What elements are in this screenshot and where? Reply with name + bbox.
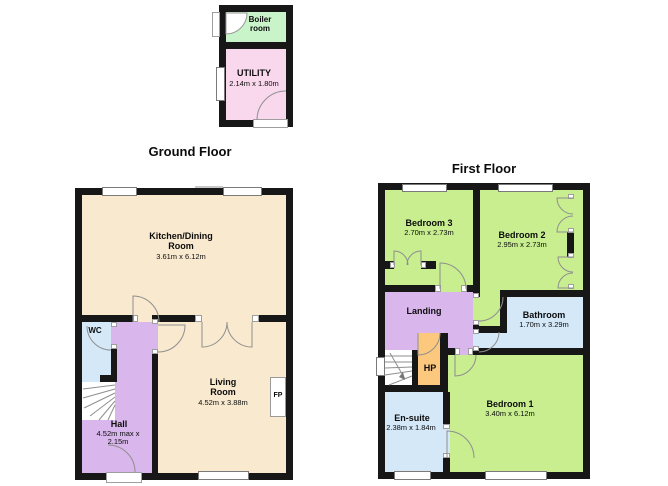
front-door-leaf (106, 472, 142, 483)
door-jamb (568, 228, 574, 233)
door-jamb (421, 262, 426, 268)
door-jamb (435, 285, 441, 292)
ensuite-dims: 2.38m x 1.84m (386, 424, 436, 432)
ground-floor-title: Ground Floor (148, 144, 231, 159)
landing-window (376, 357, 385, 376)
bedroom3-dims: 2.70m x 2.73m (404, 229, 454, 237)
back-step-line (195, 186, 223, 188)
first-floor-title: First Floor (452, 161, 516, 176)
door-jamb (473, 293, 479, 298)
door-jamb (468, 348, 473, 355)
bedroom2-dims: 2.95m x 2.73m (497, 241, 547, 249)
bathroom-dims: 1.70m x 3.29m (519, 321, 569, 329)
door-jamb (568, 284, 574, 289)
boiler-door-leaf (212, 12, 220, 37)
door-jamb (195, 315, 202, 322)
door-jamb (568, 253, 574, 258)
door-jamb (133, 315, 138, 322)
bedroom1-window (485, 471, 547, 480)
door-jamb (111, 344, 117, 349)
door-jamb (443, 453, 450, 458)
bedroom3-window (402, 184, 447, 192)
utility-dims: 2.14m x 1.80m (229, 80, 279, 88)
landing-label: Landing (407, 307, 442, 317)
door-jamb (152, 349, 158, 354)
hp-label: HP (424, 364, 437, 374)
door-jamb (390, 262, 395, 268)
door-jamb (473, 329, 479, 334)
kitchen-window (102, 187, 137, 196)
back-door-opening (223, 187, 262, 196)
door-jamb (455, 348, 460, 355)
door-jamb (443, 424, 450, 429)
door-jamb (568, 194, 574, 199)
boiler-room-label: Boiler room (243, 15, 277, 33)
living-room-window (198, 471, 249, 480)
living-room-dims: 4.52m x 3.88m (198, 399, 248, 407)
wc-label: WC (88, 326, 101, 336)
living-room-label: Living Room (203, 378, 243, 397)
bedroom1-dims: 3.40m x 6.12m (485, 410, 535, 418)
kitchen-label: Kitchen/Dining Room (143, 232, 219, 251)
floor-plan-canvas: Ground Floor First Floor Boiler room UTI… (0, 0, 668, 486)
utility-window (216, 67, 225, 101)
ensuite-window (394, 471, 431, 480)
kitchen-dims: 3.61m x 6.12m (156, 253, 206, 261)
door-jamb (252, 315, 259, 322)
bedroom2-window (498, 184, 553, 192)
door-jamb (473, 346, 479, 351)
fireplace-label: FP (274, 391, 283, 401)
door-jamb (111, 322, 117, 327)
hall-dims: 4.52m max x 2.15m (92, 430, 144, 446)
door-jamb (152, 319, 158, 324)
door-jamb (473, 320, 479, 325)
door-jamb (461, 285, 467, 292)
utility-door-leaf (253, 119, 288, 128)
utility-label: UTILITY (237, 69, 271, 79)
